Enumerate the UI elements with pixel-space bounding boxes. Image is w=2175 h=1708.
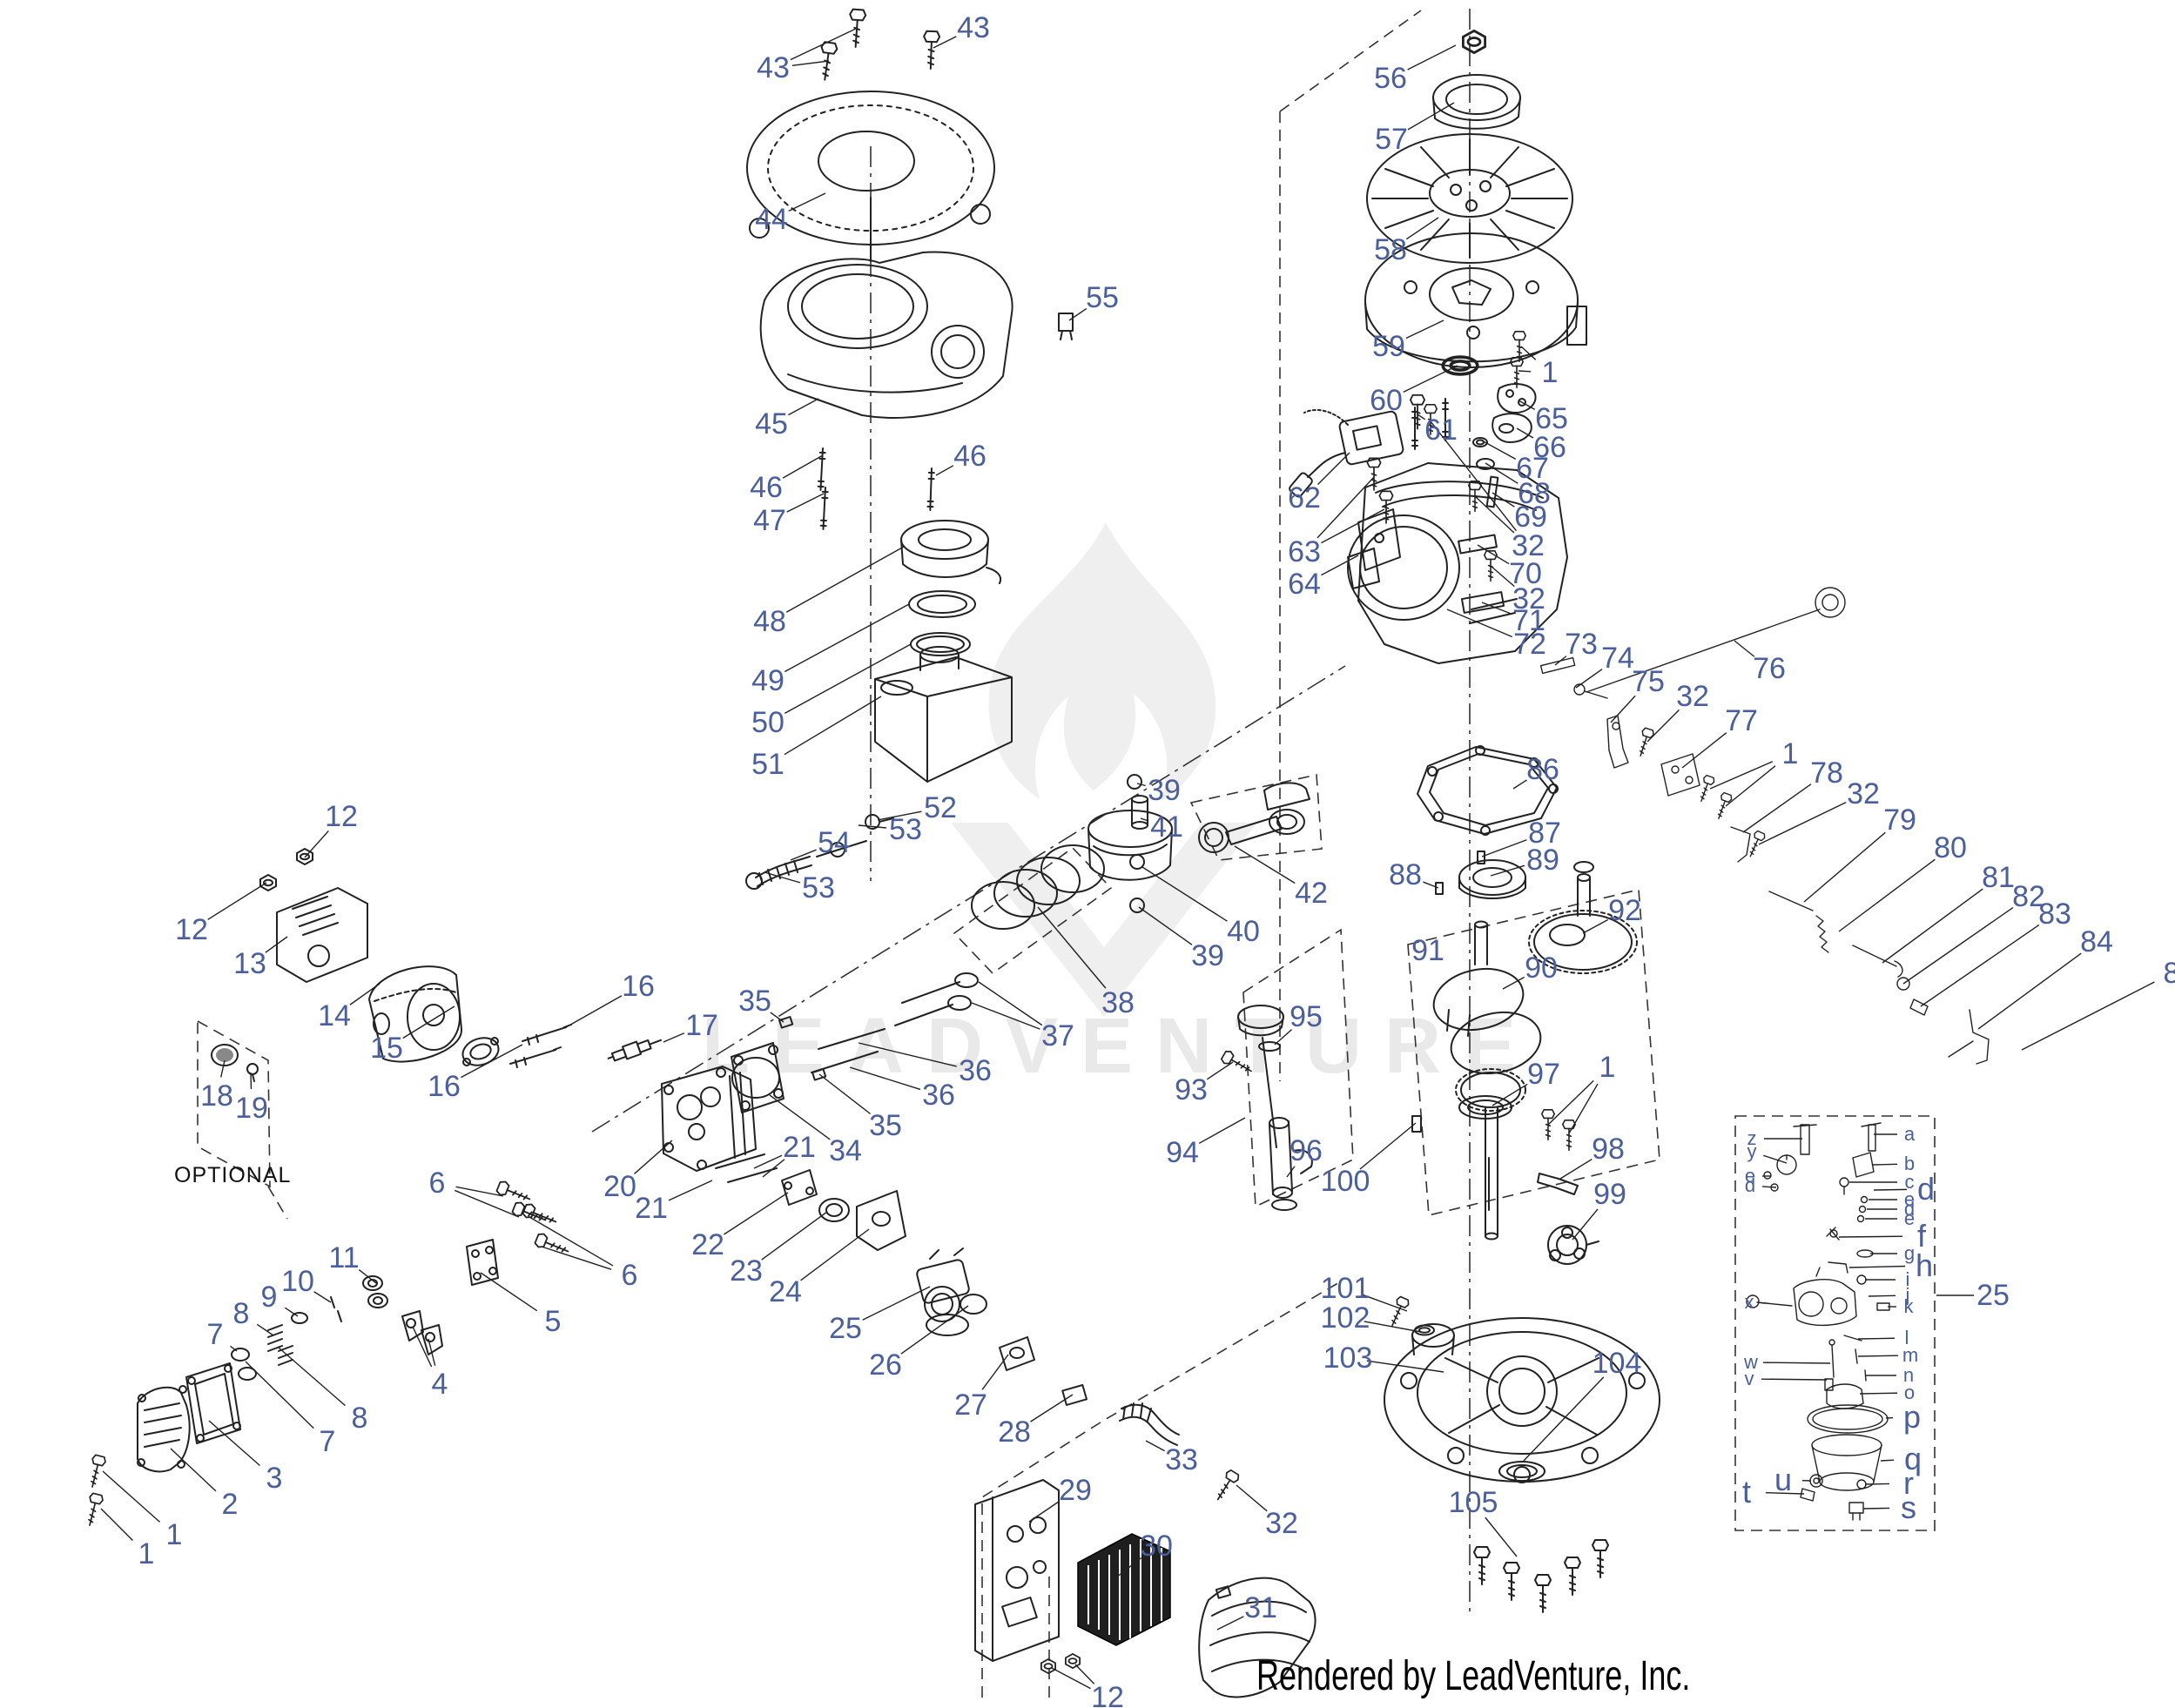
part-callout-50: 50 bbox=[751, 708, 784, 737]
part-callout-95: 95 bbox=[1290, 1002, 1323, 1032]
part-callout-19: 19 bbox=[235, 1093, 268, 1123]
part-callout-22: 22 bbox=[691, 1230, 724, 1260]
part-callout-34: 34 bbox=[829, 1136, 862, 1166]
part-callout-94: 94 bbox=[1166, 1138, 1199, 1167]
part-callout-1: 1 bbox=[1542, 358, 1559, 387]
part-callout-98: 98 bbox=[1592, 1134, 1625, 1164]
part-callout-25: 25 bbox=[1976, 1281, 2010, 1310]
part-callout-59: 59 bbox=[1372, 332, 1405, 361]
part-callout-53: 53 bbox=[802, 873, 835, 903]
part-callout-99: 99 bbox=[1593, 1180, 1626, 1209]
part-callout-105: 105 bbox=[1449, 1488, 1498, 1517]
part-callout-4: 4 bbox=[432, 1369, 448, 1399]
woodruff-key bbox=[1412, 1116, 1421, 1132]
blower-housing bbox=[761, 252, 1013, 418]
part-callout-e: e bbox=[1904, 1209, 1915, 1228]
part-callout-55: 55 bbox=[1086, 283, 1119, 313]
part-callout-16: 16 bbox=[428, 1072, 461, 1101]
part-callout-12: 12 bbox=[325, 802, 358, 831]
cap-ring bbox=[909, 591, 975, 617]
part-callout-8: 8 bbox=[2164, 958, 2175, 988]
part-callout-m: m bbox=[1902, 1346, 1918, 1365]
part-callout-28: 28 bbox=[998, 1417, 1031, 1447]
rendered-by-credit: Rendered by LeadVenture, Inc. bbox=[1256, 1652, 1690, 1700]
part-callout-57: 57 bbox=[1375, 124, 1408, 154]
cover-gasket bbox=[186, 1363, 240, 1443]
part-callout-36: 36 bbox=[922, 1080, 955, 1110]
part-callout-88: 88 bbox=[1389, 860, 1422, 890]
muffler-gasket bbox=[459, 1033, 502, 1070]
part-callout-v: v bbox=[1745, 1369, 1754, 1389]
part-callout-27: 27 bbox=[954, 1390, 987, 1420]
part-callout-33: 33 bbox=[1165, 1445, 1198, 1475]
muffler-nut bbox=[260, 875, 276, 891]
part-callout-39: 39 bbox=[1148, 776, 1181, 805]
push-rods bbox=[716, 1154, 777, 1182]
rocker-bracket bbox=[467, 1240, 498, 1285]
part-callout-12: 12 bbox=[1091, 1683, 1124, 1708]
part-callout-t: t bbox=[1742, 1476, 1751, 1508]
part-callout-36: 36 bbox=[959, 1056, 992, 1086]
part-callout-83: 83 bbox=[2038, 899, 2071, 929]
cover-bolt bbox=[84, 1493, 104, 1527]
pan-washer bbox=[1415, 1326, 1434, 1335]
part-callout-32: 32 bbox=[1676, 682, 1709, 711]
part-callout-56: 56 bbox=[1374, 64, 1407, 93]
part-callout-90: 90 bbox=[1525, 953, 1558, 983]
flywheel-nut bbox=[1463, 30, 1485, 52]
part-callout-46: 46 bbox=[750, 473, 783, 502]
filter-bolt bbox=[1212, 1469, 1240, 1503]
part-callout-43: 43 bbox=[957, 13, 990, 43]
part-callout-6: 6 bbox=[429, 1168, 446, 1198]
starter-cup bbox=[1433, 75, 1520, 129]
part-callout-74: 74 bbox=[1601, 643, 1634, 673]
part-callout-25: 25 bbox=[829, 1314, 862, 1343]
part-callout-78: 78 bbox=[1810, 758, 1843, 788]
stop-switch bbox=[1059, 313, 1073, 340]
part-callout-p: p bbox=[1903, 1402, 1921, 1433]
spark-plug bbox=[606, 1033, 663, 1065]
piston-pin bbox=[1128, 775, 1148, 912]
part-callout-37: 37 bbox=[1041, 1021, 1074, 1051]
oil-pan bbox=[1384, 1318, 1660, 1483]
part-callout-7: 7 bbox=[207, 1320, 224, 1349]
part-callout-58: 58 bbox=[1374, 235, 1407, 265]
part-callout-16: 16 bbox=[622, 972, 655, 1001]
part-callout-2: 2 bbox=[222, 1489, 239, 1519]
part-callout-6: 6 bbox=[622, 1261, 638, 1290]
pan-bolt bbox=[1565, 1557, 1580, 1595]
construction-lines bbox=[198, 9, 1935, 1698]
callout-leader-lines bbox=[101, 28, 2154, 1689]
head-stud bbox=[1412, 407, 1417, 449]
pan-bolt bbox=[1474, 1547, 1490, 1584]
part-callout-80: 80 bbox=[1934, 833, 1967, 863]
part-callout-23: 23 bbox=[730, 1256, 763, 1286]
part-callout-96: 96 bbox=[1290, 1136, 1323, 1166]
part-callout-41: 41 bbox=[1150, 812, 1183, 842]
recoil-bolt bbox=[923, 31, 939, 70]
part-callout-89: 89 bbox=[1526, 845, 1559, 875]
part-callout-102: 102 bbox=[1321, 1303, 1370, 1333]
part-callout-32: 32 bbox=[1512, 531, 1545, 561]
part-callout-32: 32 bbox=[1847, 779, 1880, 809]
part-callout-72: 72 bbox=[1513, 629, 1546, 659]
pan-bolt bbox=[1504, 1563, 1519, 1600]
part-callout-k: k bbox=[1904, 1297, 1914, 1316]
part-callout-84: 84 bbox=[2080, 927, 2113, 957]
part-callout-8: 8 bbox=[352, 1403, 368, 1433]
part-callout-9: 9 bbox=[261, 1282, 278, 1312]
part-callout-14: 14 bbox=[318, 1001, 351, 1031]
part-callout-11: 11 bbox=[328, 1243, 359, 1273]
part-callout-76: 76 bbox=[1753, 654, 1786, 683]
part-callout-31: 31 bbox=[1244, 1593, 1277, 1623]
part-callout-a: a bbox=[1904, 1125, 1915, 1144]
intake-plates bbox=[782, 1170, 906, 1250]
head-bolt bbox=[522, 1202, 558, 1228]
part-callout-1: 1 bbox=[166, 1520, 183, 1550]
part-callout-52: 52 bbox=[924, 793, 957, 823]
muffler-guard bbox=[277, 888, 367, 982]
cap-oring bbox=[911, 633, 970, 656]
part-callout-69: 69 bbox=[1514, 502, 1547, 532]
part-callout-93: 93 bbox=[1175, 1075, 1208, 1105]
part-callout-92: 92 bbox=[1608, 896, 1641, 925]
air-filter-base bbox=[975, 1480, 1059, 1661]
part-callout-d: d bbox=[1745, 1176, 1755, 1195]
part-callout-44: 44 bbox=[755, 205, 788, 234]
part-callout-29: 29 bbox=[1059, 1476, 1092, 1505]
part-callout-51: 51 bbox=[751, 750, 784, 779]
part-callout-65: 65 bbox=[1535, 404, 1568, 434]
part-callout-1: 1 bbox=[1599, 1052, 1616, 1082]
filter-nut bbox=[1041, 1659, 1055, 1673]
part-callout-10: 10 bbox=[281, 1267, 314, 1296]
part-callout-x: x bbox=[1745, 1293, 1754, 1312]
filter-nut bbox=[1066, 1654, 1080, 1668]
tank-stud bbox=[820, 488, 828, 529]
part-callout-48: 48 bbox=[753, 607, 786, 636]
part-callout-77: 77 bbox=[1725, 706, 1758, 736]
part-callout-60: 60 bbox=[1370, 386, 1403, 415]
part-callout-u: u bbox=[1774, 1464, 1792, 1496]
pan-bolt bbox=[1386, 1295, 1410, 1328]
pan-seal bbox=[1499, 1462, 1545, 1481]
part-callout-h: h bbox=[1916, 1250, 1933, 1281]
wire-clip-plates bbox=[1348, 509, 1400, 588]
part-callout-32: 32 bbox=[1265, 1509, 1298, 1538]
part-callout-42: 42 bbox=[1295, 878, 1328, 908]
part-callout-63: 63 bbox=[1288, 537, 1321, 567]
part-callout-103: 103 bbox=[1323, 1343, 1373, 1373]
head-bolt bbox=[495, 1180, 532, 1206]
part-callout-54: 54 bbox=[818, 828, 851, 857]
part-callout-12: 12 bbox=[175, 915, 208, 945]
part-callout-15: 15 bbox=[370, 1033, 403, 1063]
part-callout-75: 75 bbox=[1632, 667, 1665, 696]
optional-label: OPTIONAL bbox=[174, 1163, 291, 1188]
governor-gear bbox=[1548, 1226, 1599, 1264]
tank-stud bbox=[927, 468, 934, 510]
part-callout-45: 45 bbox=[755, 409, 788, 439]
part-callout-d: d bbox=[1917, 1173, 1935, 1205]
part-callout-18: 18 bbox=[200, 1081, 233, 1111]
part-callout-g: g bbox=[1904, 1244, 1915, 1263]
part-callout-1: 1 bbox=[1782, 739, 1799, 769]
part-callout-86: 86 bbox=[1526, 755, 1559, 784]
part-callout-38: 38 bbox=[1101, 988, 1135, 1018]
part-callout-3: 3 bbox=[266, 1463, 283, 1493]
part-callout-s: s bbox=[1901, 1492, 1916, 1523]
part-callout-101: 101 bbox=[1321, 1274, 1370, 1303]
part-callout-81: 81 bbox=[1982, 863, 2015, 892]
part-callout-13: 13 bbox=[233, 949, 266, 978]
pan-bolt bbox=[1535, 1575, 1551, 1612]
part-callout-26: 26 bbox=[869, 1350, 902, 1380]
part-callout-47: 47 bbox=[753, 506, 786, 535]
part-callout-y: y bbox=[1747, 1142, 1757, 1161]
part-callout-35: 35 bbox=[869, 1111, 902, 1140]
part-callout-104: 104 bbox=[1593, 1348, 1642, 1378]
part-callout-49: 49 bbox=[751, 666, 784, 696]
tank-stud bbox=[818, 448, 825, 490]
part-callout-35: 35 bbox=[738, 986, 771, 1016]
part-callout-30: 30 bbox=[1140, 1531, 1173, 1561]
carburetor bbox=[916, 1248, 970, 1335]
part-callout-21: 21 bbox=[635, 1194, 668, 1223]
part-callout-8: 8 bbox=[233, 1299, 250, 1328]
part-callout-21: 21 bbox=[783, 1133, 816, 1162]
part-callout-79: 79 bbox=[1883, 805, 1916, 835]
part-callout-62: 62 bbox=[1288, 483, 1321, 513]
breather-tube bbox=[1120, 1403, 1179, 1445]
part-callout-1: 1 bbox=[138, 1539, 155, 1569]
part-callout-43: 43 bbox=[757, 53, 790, 83]
part-callout-100: 100 bbox=[1321, 1167, 1370, 1196]
part-callout-97: 97 bbox=[1527, 1059, 1560, 1089]
part-callout-91: 91 bbox=[1411, 936, 1444, 965]
part-callout-64: 64 bbox=[1288, 569, 1321, 599]
exploded-parts-diagram-page: LEADVENTURE bbox=[0, 0, 2175, 1708]
pan-bolt bbox=[1593, 1540, 1608, 1577]
part-callout-17: 17 bbox=[685, 1011, 718, 1040]
part-callout-7: 7 bbox=[320, 1427, 336, 1456]
part-callout-20: 20 bbox=[603, 1172, 636, 1201]
part-callout-5: 5 bbox=[545, 1307, 562, 1336]
fuel-cap bbox=[901, 521, 1000, 583]
part-callout-61: 61 bbox=[1424, 415, 1458, 445]
part-callout-24: 24 bbox=[769, 1277, 802, 1307]
part-callout-53: 53 bbox=[889, 815, 922, 844]
part-callout-73: 73 bbox=[1565, 629, 1598, 659]
part-callout-40: 40 bbox=[1227, 917, 1260, 946]
part-callout-39: 39 bbox=[1191, 941, 1224, 971]
part-callout-46: 46 bbox=[953, 441, 986, 471]
